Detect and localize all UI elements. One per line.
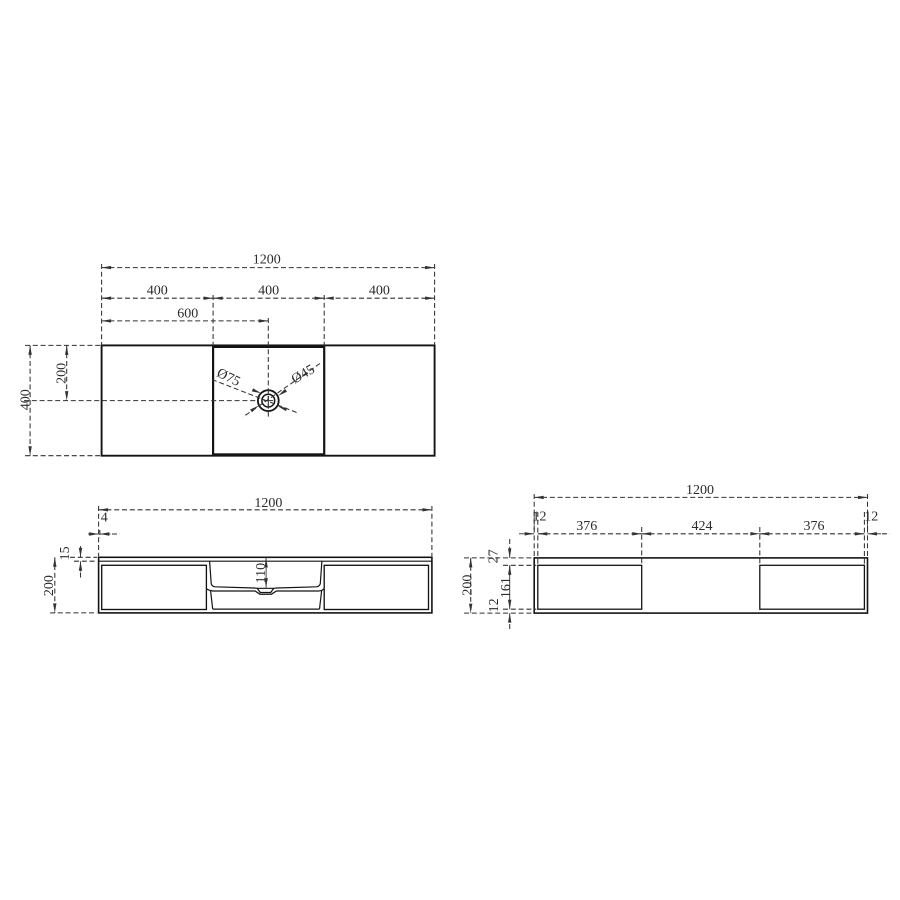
svg-text:1200: 1200 bbox=[686, 483, 714, 498]
svg-text:400: 400 bbox=[18, 389, 33, 410]
svg-text:200: 200 bbox=[54, 363, 69, 384]
svg-text:4: 4 bbox=[101, 510, 108, 525]
svg-text:161: 161 bbox=[499, 577, 514, 598]
svg-text:12: 12 bbox=[533, 509, 547, 524]
svg-text:1200: 1200 bbox=[253, 253, 281, 268]
svg-text:15: 15 bbox=[58, 546, 73, 560]
svg-text:400: 400 bbox=[147, 283, 168, 298]
svg-text:12: 12 bbox=[864, 509, 878, 524]
svg-text:400: 400 bbox=[369, 283, 390, 298]
svg-text:200: 200 bbox=[42, 575, 57, 596]
svg-text:376: 376 bbox=[804, 519, 825, 534]
svg-text:110: 110 bbox=[254, 563, 269, 583]
svg-text:376: 376 bbox=[576, 519, 597, 534]
svg-text:1200: 1200 bbox=[254, 496, 282, 511]
svg-text:600: 600 bbox=[177, 306, 198, 321]
svg-text:424: 424 bbox=[692, 519, 713, 534]
svg-text:27: 27 bbox=[486, 549, 501, 563]
svg-text:12: 12 bbox=[487, 598, 502, 612]
svg-text:200: 200 bbox=[460, 575, 475, 596]
svg-text:400: 400 bbox=[258, 283, 279, 298]
